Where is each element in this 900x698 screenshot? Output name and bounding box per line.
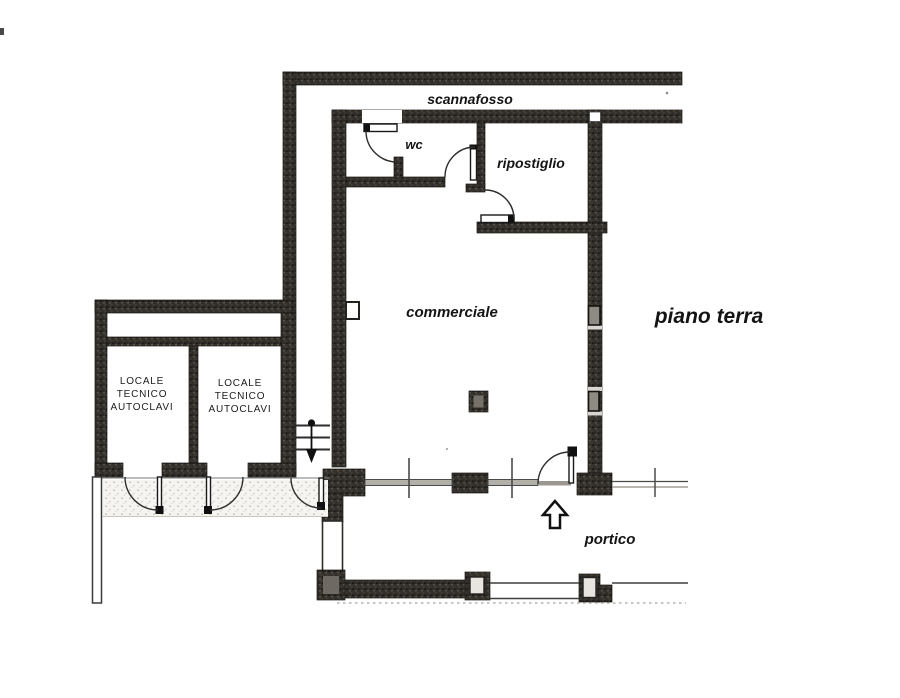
label-line: TECNICO [215,391,266,402]
door-leaf [158,477,162,509]
floor-plan-drawing: scannafosso wc ripostiglio commerciale p… [0,0,900,698]
walkway-paving [103,480,328,516]
door-leaf [207,477,211,509]
label-commerciale: commerciale [406,304,498,321]
low-wall-west [93,477,102,603]
wall-locale-left [95,300,107,475]
wall-locale-corridor [107,337,281,346]
wall-ripostiglio-stub [466,184,485,192]
wall-junction-notch [590,112,601,122]
dot-artifact [666,92,669,95]
door-leaf [471,147,477,180]
label-scannafosso: scannafosso [427,91,513,107]
wall-niche-upper [589,306,601,325]
wall-ripostiglio-partition [477,123,485,186]
wall-locale-bottom-b [162,463,207,477]
wall-foot-right [577,473,612,495]
pillar-core [474,396,484,408]
wall-gap [588,326,602,330]
label-line: AUTOCLAVI [209,404,272,415]
wall-gap [588,387,602,391]
wall-locale-middle [189,346,198,463]
edge-artifact [0,28,4,35]
wall-commerciale-right [588,110,602,473]
wall-locale-bottom-c [248,463,296,477]
door-threshold [538,481,571,486]
label-line: TECNICO [117,389,168,400]
dot-artifact [446,448,448,450]
wall-gap [588,412,602,416]
wall-niche-lower [589,392,600,412]
portico-pillar-core [470,577,484,594]
label-locale-tecnico-right: LOCALE TECNICO AUTOCLAVI [209,378,272,415]
commerciale-pillar [469,391,488,412]
wall-outer-top [283,72,682,85]
label-wc: wc [405,137,423,152]
door-hinge [364,125,370,132]
label-locale-tecnico-left: LOCALE TECNICO AUTOCLAVI [111,376,174,413]
label-line: LOCALE [120,376,164,387]
portico-pillar-foot [598,585,612,602]
label-ripostiglio: ripostiglio [497,155,565,171]
wall-portico-south [343,580,468,598]
wall-wc-stub [394,157,403,178]
wall-foot-left [323,469,365,496]
wall-wc-bottom [346,177,445,187]
door-hinge [317,502,325,510]
label-line: LOCALE [218,378,262,389]
glazing-right [488,480,538,486]
label-line: AUTOCLAVI [111,402,174,413]
wall-locale-bottom-a [95,463,123,477]
wall-outer-left [283,72,296,313]
portico-pillar-core [323,576,339,594]
portico-west-window [323,521,343,572]
label-portico: portico [584,531,636,548]
wall-locale-right [281,313,296,475]
label-piano-terra: piano terra [654,305,764,328]
door-opening [362,110,402,123]
wall-locale-top [95,300,292,313]
wall-niche-left [346,302,359,319]
wall-south-pillar [452,473,488,493]
door-hinge [508,216,514,223]
floor-plan-canvas: scannafosso wc ripostiglio commerciale p… [0,0,900,698]
wall-commerciale-left [332,110,346,467]
wall-ripostiglio-bottom [477,222,607,233]
stair-start-dot [308,419,315,426]
portico-pillar-core [583,578,596,598]
